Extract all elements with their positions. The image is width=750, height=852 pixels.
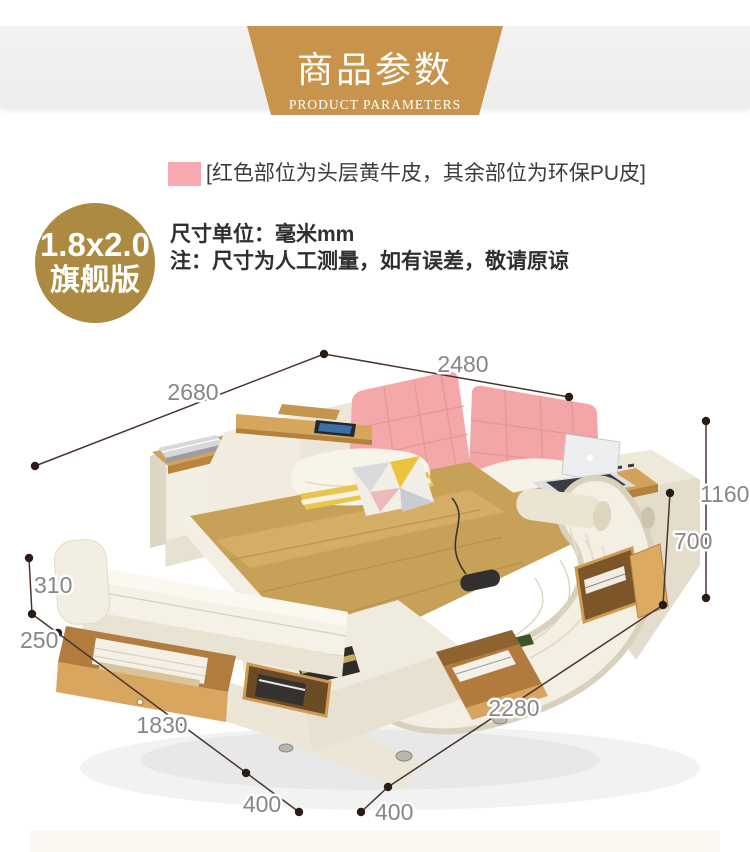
disclaimer-note: 注：尺寸为人工测量，如有误差，敬请原谅 xyxy=(170,248,569,275)
size-badge-edition: 旗舰版 xyxy=(50,263,140,299)
product-parameters-page: 商品参数 PRODUCT PARAMETERS [红色部位为头层黄牛皮，其余部位… xyxy=(0,0,750,852)
material-legend-text: [红色部位为头层黄牛皮，其余部位为环保PU皮] xyxy=(206,161,646,187)
dim-label-height-310: 310 xyxy=(34,572,72,598)
next-section-band xyxy=(30,831,720,852)
dim-label-width-2480: 2480 xyxy=(437,351,488,377)
bed-illustration xyxy=(53,372,700,810)
dim-label-depth-250: 250 xyxy=(20,627,58,653)
dim-label-ext-400-right: 400 xyxy=(375,799,413,825)
size-badge: 1.8x2.0 旗舰版 xyxy=(35,203,155,323)
dim-label-length-1830: 1830 xyxy=(136,712,187,738)
section-banner: 商品参数 PRODUCT PARAMETERS xyxy=(247,26,503,115)
material-legend: [红色部位为头层黄牛皮，其余部位为环保PU皮] xyxy=(168,161,646,187)
dim-label-height-1160: 1160 xyxy=(700,481,749,507)
size-badge-dimensions: 1.8x2.0 xyxy=(40,227,150,263)
dim-label-depth-2680: 2680 xyxy=(167,379,218,405)
dim-label-ext-400-left: 400 xyxy=(243,791,281,817)
bed-dimension-diagram: 2680 2480 1160 700 310 250 1830 2280 400… xyxy=(0,330,750,852)
unit-note: 尺寸单位：毫米mm xyxy=(170,221,569,248)
section-subtitle: PRODUCT PARAMETERS xyxy=(247,97,503,113)
section-title: 商品参数 xyxy=(247,41,503,93)
dim-label-height-700: 700 xyxy=(674,528,712,554)
measurement-notes: 尺寸单位：毫米mm 注：尺寸为人工测量，如有误差，敬请原谅 xyxy=(170,221,569,275)
dim-label-length-2280: 2280 xyxy=(488,695,539,721)
pink-color-swatch xyxy=(168,162,201,186)
